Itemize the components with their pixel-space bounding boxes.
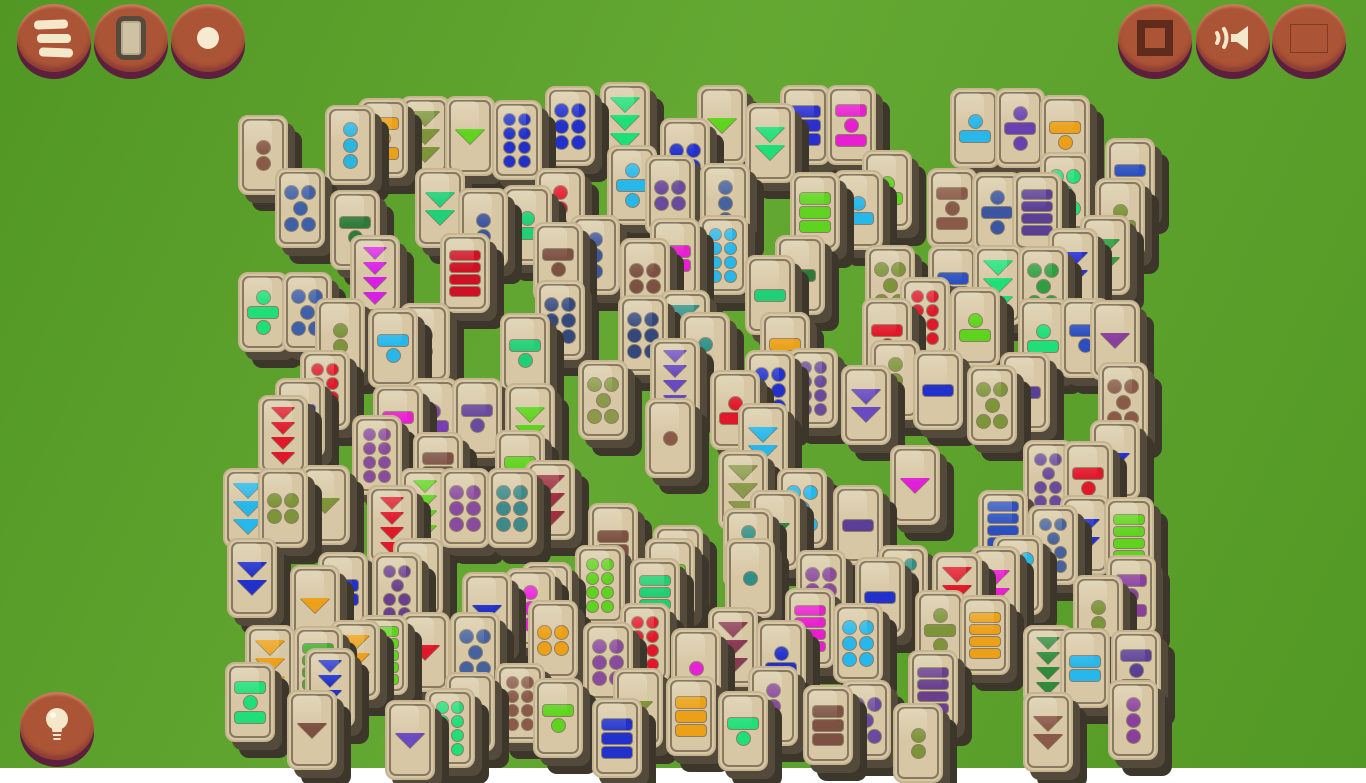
- dot-glyph: [927, 305, 938, 316]
- dot-glyph: [690, 662, 703, 675]
- mahjong-tile[interactable]: [258, 468, 308, 548]
- triangle-glyph: [1033, 716, 1063, 731]
- dot-glyph: [860, 637, 873, 650]
- triangle-glyph: [535, 493, 565, 508]
- bar-glyph: [918, 668, 948, 677]
- tile-icon: [116, 16, 146, 60]
- dot-glyph: [452, 744, 463, 755]
- mahjong-tile[interactable]: [258, 395, 308, 475]
- dot-glyph: [1082, 482, 1095, 495]
- dot-glyph: [934, 609, 947, 622]
- dot-glyph: [699, 354, 712, 367]
- dot-glyph: [699, 338, 712, 351]
- dot-glyph: [815, 376, 826, 387]
- dot-glyph: [804, 518, 817, 531]
- mahjong-tile[interactable]: [803, 685, 853, 765]
- dot-glyph: [1117, 396, 1130, 409]
- language-button[interactable]: [1272, 4, 1346, 72]
- dot-glyph: [1127, 730, 1140, 743]
- triangle-glyph: [942, 567, 972, 582]
- dot-glyph: [562, 298, 575, 311]
- dot-glyph: [519, 142, 530, 153]
- bar-glyph: [836, 135, 866, 146]
- dot-glyph: [1035, 482, 1046, 493]
- bar-glyph: [843, 520, 873, 531]
- dot-glyph: [587, 601, 598, 612]
- bar-glyph: [1070, 656, 1100, 667]
- dot-glyph: [477, 214, 490, 227]
- dot-glyph: [522, 719, 533, 730]
- mahjong-tile[interactable]: [1108, 680, 1158, 760]
- triangle-glyph: [271, 452, 295, 464]
- bar-glyph: [1114, 527, 1144, 536]
- mahjong-tile[interactable]: [227, 538, 277, 618]
- mahjong-tile[interactable]: [445, 96, 495, 176]
- triangle-glyph: [380, 527, 404, 539]
- triangle-glyph: [718, 658, 748, 673]
- dot-glyph: [588, 410, 601, 423]
- triangle-glyph: [1036, 652, 1060, 664]
- dot-glyph: [1067, 202, 1080, 215]
- dot-glyph: [450, 486, 463, 499]
- dot-glyph: [628, 313, 641, 326]
- mahjong-tile[interactable]: [890, 445, 940, 525]
- triangle-glyph: [380, 512, 404, 524]
- dot-glyph: [364, 471, 375, 482]
- dot-glyph: [969, 115, 982, 128]
- bar-glyph: [340, 217, 370, 228]
- game-background: [0, 0, 1366, 768]
- triangle-glyph: [271, 407, 295, 419]
- triangle-glyph: [707, 118, 737, 133]
- bar-glyph: [510, 340, 540, 351]
- dot-glyph: [588, 378, 601, 391]
- mahjong-tile[interactable]: [725, 538, 775, 618]
- dot-glyph: [589, 265, 602, 278]
- bar-glyph: [795, 606, 825, 615]
- bar-glyph: [960, 330, 990, 341]
- dot-glyph: [364, 457, 375, 468]
- dot-glyph: [905, 587, 916, 598]
- dot-glyph: [806, 568, 819, 581]
- bar-glyph: [450, 263, 480, 272]
- bar-glyph: [800, 207, 830, 218]
- dot-glyph: [687, 144, 700, 157]
- dot-glyph: [710, 271, 721, 282]
- mahjong-tile[interactable]: [352, 415, 402, 495]
- mahjong-tile[interactable]: [833, 170, 883, 250]
- triangle-glyph: [851, 407, 881, 422]
- dot-glyph: [1125, 589, 1138, 602]
- bar-glyph: [728, 718, 758, 729]
- mahjong-tile[interactable]: [788, 348, 838, 428]
- dot-glyph: [889, 358, 902, 371]
- dot-glyph: [602, 559, 613, 570]
- dot-glyph: [602, 587, 613, 598]
- bar-glyph: [937, 188, 967, 199]
- dot-glyph: [1050, 454, 1061, 465]
- dot-glyph: [392, 580, 403, 591]
- dot-glyph: [460, 630, 473, 643]
- triangle-glyph: [755, 145, 785, 160]
- dot-glyph: [467, 486, 480, 499]
- mahjong-tile[interactable]: [592, 698, 642, 778]
- triangle-glyph: [395, 733, 425, 748]
- dot-glyph: [710, 257, 721, 268]
- dot-glyph: [912, 745, 925, 758]
- dot-glyph: [1059, 136, 1072, 149]
- dot-glyph: [815, 362, 826, 373]
- bar-glyph: [918, 692, 948, 701]
- dot-glyph: [450, 518, 463, 531]
- bar-glyph: [800, 193, 830, 204]
- triangle-glyph: [363, 292, 387, 304]
- dot-glyph: [927, 319, 938, 330]
- triangle-glyph: [318, 675, 342, 687]
- dot-glyph: [1020, 585, 1033, 598]
- dot-glyph: [469, 646, 482, 659]
- dot-glyph: [344, 139, 357, 152]
- dot-glyph: [647, 280, 660, 293]
- dot-glyph: [647, 645, 658, 656]
- bar-glyph: [937, 218, 967, 229]
- mahjong-tile[interactable]: [440, 468, 490, 548]
- dot-glyph: [301, 306, 314, 319]
- bar-glyph: [450, 275, 480, 284]
- dot-glyph: [852, 197, 865, 210]
- triangle-glyph: [297, 723, 327, 738]
- mahjong-tile[interactable]: [960, 595, 1010, 675]
- mahjong-tile[interactable]: [533, 678, 583, 758]
- bar-glyph: [1121, 650, 1151, 661]
- bar-glyph: [1070, 670, 1100, 681]
- dot-glyph: [1037, 325, 1050, 338]
- dot-glyph: [655, 181, 668, 194]
- dot-glyph: [1043, 468, 1054, 479]
- dot-glyph: [843, 637, 856, 650]
- mahjong-tile[interactable]: [275, 168, 325, 248]
- mahjong-tile[interactable]: [492, 100, 542, 180]
- dot-glyph: [589, 233, 602, 246]
- dot-glyph: [552, 719, 565, 732]
- dot-glyph: [504, 128, 515, 139]
- bar-glyph: [970, 613, 1000, 622]
- dot-glyph: [562, 314, 575, 327]
- dot-glyph: [538, 626, 551, 639]
- dot-glyph: [946, 202, 959, 215]
- dot-glyph: [597, 394, 610, 407]
- dot-glyph: [800, 362, 811, 373]
- dot-glyph: [257, 157, 270, 170]
- bar-glyph: [813, 720, 843, 731]
- bar-glyph: [543, 705, 573, 716]
- bar-glyph: [450, 287, 480, 296]
- dot-glyph: [628, 329, 641, 342]
- dot-glyph: [519, 114, 530, 125]
- dot-glyph: [522, 691, 533, 702]
- bar-glyph: [1022, 190, 1052, 199]
- dot-glyph: [742, 526, 755, 539]
- dot-glyph: [1125, 380, 1138, 393]
- triangle-glyph: [237, 562, 267, 577]
- dot-glyph: [467, 502, 480, 515]
- dot-glyph: [572, 120, 585, 133]
- hint-button[interactable]: [20, 692, 94, 760]
- dot-glyph: [257, 141, 270, 154]
- mahjong-tile[interactable]: [745, 103, 795, 183]
- dot-glyph: [379, 457, 390, 468]
- bar-glyph: [982, 207, 1012, 218]
- dot-glyph: [379, 443, 390, 454]
- bar-glyph: [1022, 214, 1052, 223]
- menu-button[interactable]: [17, 4, 91, 72]
- bar-glyph: [988, 502, 1018, 511]
- bar-glyph: [960, 131, 990, 142]
- mahjong-tile[interactable]: [950, 88, 1000, 168]
- dot-glyph: [775, 647, 788, 660]
- mahjong-tile[interactable]: [841, 365, 891, 445]
- dot-glyph: [285, 186, 298, 199]
- triangle-glyph: [310, 498, 340, 513]
- mahjong-tile[interactable]: [500, 313, 550, 393]
- dot-glyph: [555, 120, 568, 133]
- dot-glyph: [504, 156, 515, 167]
- dot-glyph: [419, 329, 432, 342]
- dot-glyph: [514, 486, 527, 499]
- dot-glyph: [519, 354, 532, 367]
- bar-glyph: [836, 105, 866, 116]
- square-icon: [1137, 20, 1173, 56]
- bar-glyph: [1114, 539, 1144, 548]
- bar-glyph: [925, 625, 955, 636]
- dot-glyph: [630, 280, 643, 293]
- dot-glyph: [450, 502, 463, 515]
- triangle-glyph: [980, 570, 1010, 585]
- mahjong-tile[interactable]: [893, 703, 943, 783]
- mahjong-tile[interactable]: [368, 308, 418, 388]
- mahjong-tile[interactable]: [238, 272, 288, 352]
- bar-glyph: [923, 385, 953, 396]
- bar-glyph: [543, 249, 573, 260]
- triangle-glyph: [535, 475, 565, 490]
- mahjong-tile[interactable]: [325, 105, 375, 185]
- dot-glyph: [514, 518, 527, 531]
- dot-glyph: [610, 640, 623, 653]
- dot-glyph: [572, 136, 585, 149]
- dot-button[interactable]: [171, 4, 245, 72]
- bar-glyph: [813, 706, 843, 717]
- triangle-glyph: [410, 645, 440, 660]
- triangle-glyph: [728, 465, 758, 480]
- dot-glyph: [524, 586, 537, 599]
- mahjong-tile[interactable]: [487, 468, 537, 548]
- dot-glyph: [647, 264, 660, 277]
- bar-glyph: [872, 325, 902, 336]
- bar-glyph: [1115, 165, 1145, 176]
- dot-glyph: [991, 191, 1004, 204]
- dot-glyph: [452, 716, 463, 727]
- mahjong-tile[interactable]: [698, 215, 748, 295]
- bar-glyph: [1050, 122, 1080, 133]
- dot-glyph: [344, 123, 357, 136]
- dot-glyph: [589, 249, 602, 262]
- mahjong-tile[interactable]: [575, 545, 625, 625]
- bar-glyph: [843, 213, 873, 224]
- dot-glyph: [1014, 107, 1027, 120]
- bar-glyph: [1005, 123, 1035, 134]
- dot-glyph: [514, 502, 527, 515]
- dot-glyph: [1092, 601, 1105, 614]
- dot-glyph: [725, 271, 736, 282]
- bar-glyph: [970, 649, 1000, 658]
- dot-glyph: [664, 432, 677, 445]
- dot-glyph: [672, 197, 685, 210]
- dot-glyph: [437, 744, 448, 755]
- hamburger-icon: [37, 20, 71, 57]
- mahjong-tile[interactable]: [645, 398, 695, 478]
- triangle-glyph: [410, 147, 440, 162]
- dot-glyph: [497, 486, 510, 499]
- dot-glyph: [1055, 547, 1066, 558]
- dot-glyph: [437, 716, 448, 727]
- bar-glyph: [800, 221, 830, 232]
- triangle-glyph: [363, 262, 387, 274]
- dot-glyph: [626, 164, 639, 177]
- dot-glyph: [905, 573, 916, 584]
- triangle-glyph: [1036, 637, 1060, 649]
- sound-button[interactable]: [1196, 4, 1270, 72]
- mahjong-tile[interactable]: [1023, 692, 1073, 772]
- triangle-glyph: [748, 427, 778, 442]
- mahjong-tile[interactable]: [718, 691, 768, 771]
- dot-glyph: [399, 594, 410, 605]
- dot-glyph: [991, 221, 1004, 234]
- lightbulb-icon: [42, 706, 72, 746]
- triangle-glyph: [610, 97, 640, 112]
- fullscreen-button[interactable]: [1118, 4, 1192, 72]
- dot-glyph: [632, 617, 643, 628]
- dot-glyph: [437, 702, 448, 713]
- triangle-glyph: [663, 350, 687, 362]
- dot-glyph: [912, 291, 923, 302]
- triangle-glyph: [1036, 667, 1060, 679]
- dot-glyph: [986, 399, 999, 412]
- dot-glyph: [767, 716, 780, 729]
- dot-glyph: [522, 705, 533, 716]
- triangle-glyph: [271, 422, 295, 434]
- dot-glyph: [1035, 454, 1046, 465]
- dot-glyph: [452, 730, 463, 741]
- mahjong-tile[interactable]: [833, 603, 883, 683]
- dot-glyph: [737, 732, 750, 745]
- dot-glyph: [1127, 714, 1140, 727]
- dot-glyph: [552, 263, 565, 276]
- dot-glyph: [519, 156, 530, 167]
- dot-glyph: [292, 322, 305, 335]
- speaker-icon: [1213, 21, 1253, 55]
- mahjong-tile[interactable]: [287, 690, 337, 770]
- dot-glyph: [655, 197, 668, 210]
- dot-glyph: [815, 390, 826, 401]
- dot-glyph: [610, 656, 623, 669]
- bar-glyph: [235, 712, 265, 723]
- dot-glyph: [285, 218, 298, 231]
- triangle-glyph: [755, 127, 785, 142]
- dot-glyph: [630, 264, 643, 277]
- dot-glyph: [377, 132, 390, 145]
- bar-glyph: [676, 697, 706, 708]
- bar-glyph: [1022, 226, 1052, 235]
- dot-glyph: [1108, 380, 1121, 393]
- bar-glyph: [602, 719, 632, 730]
- dot-glyph: [268, 510, 281, 523]
- dot-glyph: [507, 719, 518, 730]
- mahjong-tile[interactable]: [440, 233, 490, 313]
- triangle-glyph: [380, 497, 404, 509]
- dot-glyph: [725, 243, 736, 254]
- dot-glyph: [1048, 533, 1059, 544]
- triangle-glyph: [413, 480, 437, 492]
- dot-glyph: [587, 587, 598, 598]
- dot-glyph: [244, 696, 257, 709]
- dot-icon: [197, 27, 219, 49]
- mahjong-tile[interactable]: [967, 365, 1017, 445]
- dot-glyph: [507, 705, 518, 716]
- mahjong-tile[interactable]: [545, 86, 595, 166]
- dot-glyph: [285, 510, 298, 523]
- dot-glyph: [562, 330, 575, 343]
- dot-glyph: [1037, 280, 1050, 293]
- bar-glyph: [602, 733, 632, 744]
- mahjong-tile[interactable]: [666, 676, 716, 756]
- dot-glyph: [719, 181, 732, 194]
- dot-glyph: [605, 410, 618, 423]
- mahjong-tile[interactable]: [995, 88, 1045, 168]
- triangle-glyph: [363, 277, 387, 289]
- mahjong-tile[interactable]: [225, 662, 275, 742]
- dot-glyph: [1040, 519, 1051, 530]
- dot-glyph: [593, 672, 606, 685]
- bar-glyph: [462, 405, 492, 416]
- dot-glyph: [815, 404, 826, 415]
- dot-glyph: [554, 202, 567, 215]
- triangle-glyph: [535, 511, 565, 526]
- dot-glyph: [587, 573, 598, 584]
- dot-glyph: [1014, 137, 1027, 150]
- dot-glyph: [257, 291, 270, 304]
- mahjong-tile[interactable]: [913, 350, 963, 430]
- triangle-glyph: [718, 622, 748, 637]
- dot-glyph: [521, 212, 534, 225]
- triangle-glyph: [900, 478, 930, 493]
- bar-glyph: [970, 637, 1000, 646]
- bar-glyph: [676, 725, 706, 736]
- dot-glyph: [602, 601, 613, 612]
- tiles-button[interactable]: [94, 4, 168, 72]
- dot-glyph: [384, 594, 395, 605]
- dot-glyph: [767, 700, 780, 713]
- triangle-glyph: [610, 115, 640, 130]
- mahjong-tile[interactable]: [385, 700, 435, 780]
- dot-glyph: [327, 406, 338, 417]
- dot-glyph: [327, 364, 338, 375]
- mahjong-tile[interactable]: [578, 360, 628, 440]
- dot-glyph: [632, 645, 643, 656]
- dot-glyph: [437, 730, 448, 741]
- mahjong-tile[interactable]: [927, 168, 977, 248]
- triangle-glyph: [237, 580, 267, 595]
- dot-glyph: [387, 349, 400, 362]
